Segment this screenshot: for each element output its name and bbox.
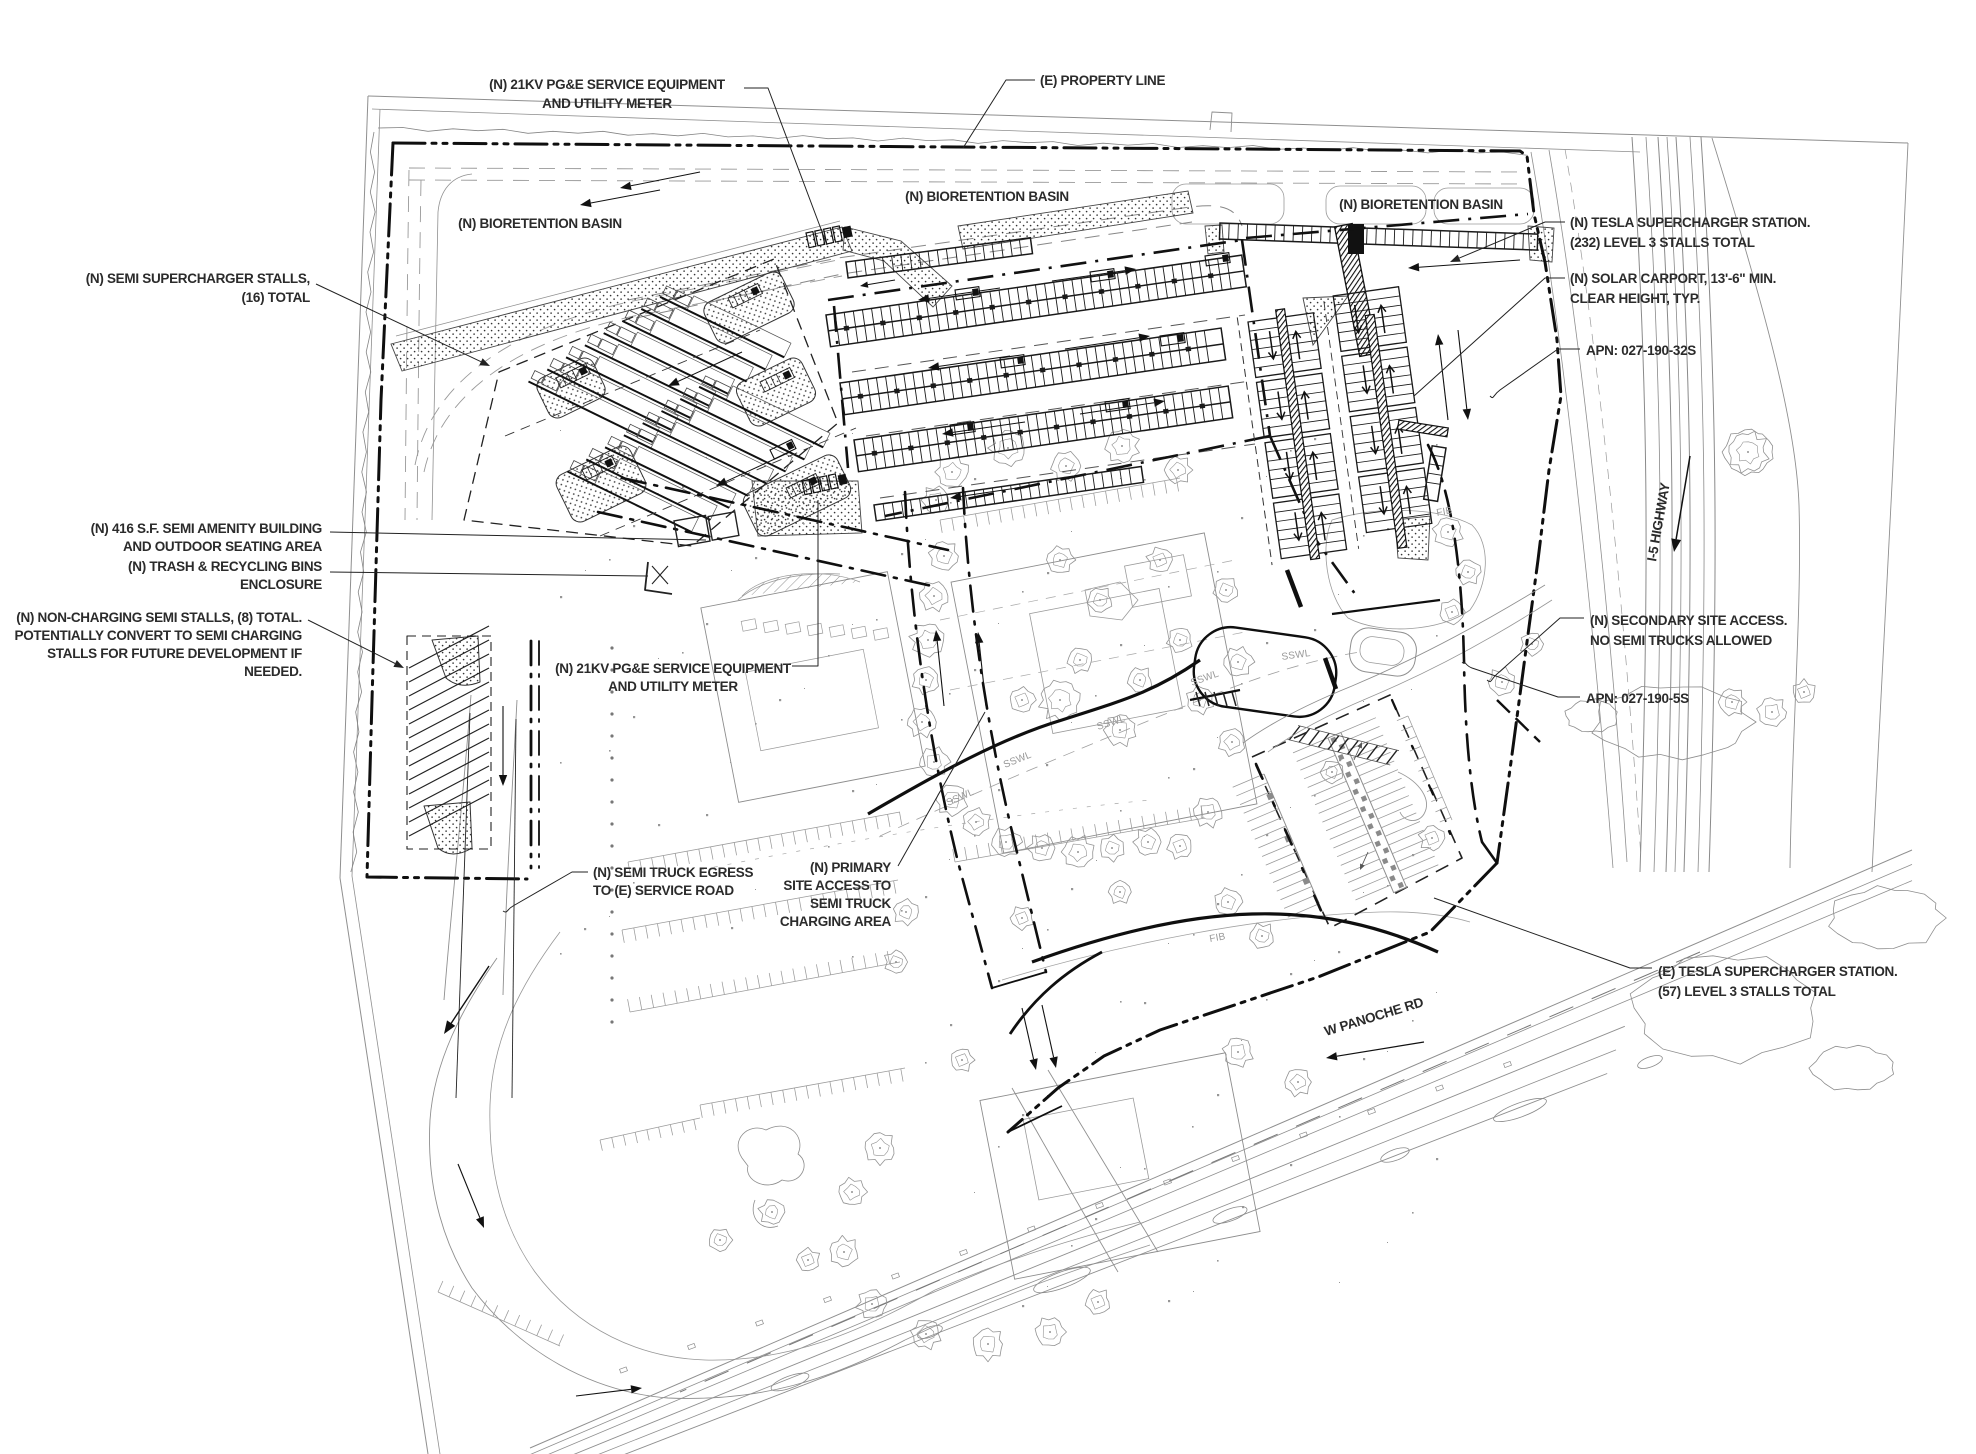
- svg-text:(N) SECONDARY SITE ACCESS.: (N) SECONDARY SITE ACCESS.: [1590, 613, 1787, 628]
- svg-text:AND UTILITY METER: AND UTILITY METER: [608, 679, 738, 694]
- svg-text:(N) NON-CHARGING SEMI STALLS,: (N) NON-CHARGING SEMI STALLS, (8) TOTAL.: [16, 610, 302, 625]
- svg-text:STALLS FOR FUTURE DEVELOPMENT: STALLS FOR FUTURE DEVELOPMENT IF: [47, 646, 302, 661]
- svg-text:(N) TESLA SUPERCHARGER STATION: (N) TESLA SUPERCHARGER STATION.: [1570, 215, 1810, 230]
- svg-text:(E) PROPERTY LINE: (E) PROPERTY LINE: [1040, 73, 1165, 88]
- svg-text:(N) 21KV PG&E SERVICE EQUIPMEN: (N) 21KV PG&E SERVICE EQUIPMENT: [555, 661, 792, 676]
- svg-text:POTENTIALLY CONVERT TO SEMI CH: POTENTIALLY CONVERT TO SEMI CHARGING: [15, 628, 302, 643]
- svg-text:CLEAR HEIGHT, TYP.: CLEAR HEIGHT, TYP.: [1570, 291, 1700, 306]
- svg-text:(N) 416 S.F. SEMI AMENITY BUIL: (N) 416 S.F. SEMI AMENITY BUILDING: [91, 521, 322, 536]
- svg-text:(N) TRASH & RECYCLING BINS: (N) TRASH & RECYCLING BINS: [128, 559, 322, 574]
- svg-text:(N) BIORETENTION BASIN: (N) BIORETENTION BASIN: [458, 216, 622, 231]
- svg-text:(57) LEVEL 3 STALLS TOTAL: (57) LEVEL 3 STALLS TOTAL: [1658, 984, 1836, 999]
- svg-text:(16) TOTAL: (16) TOTAL: [241, 290, 310, 305]
- svg-text:SEMI TRUCK: SEMI TRUCK: [810, 896, 892, 911]
- svg-text:(N) PRIMARY: (N) PRIMARY: [810, 860, 891, 875]
- svg-text:(N) SOLAR CARPORT, 13'-6" MIN.: (N) SOLAR CARPORT, 13'-6" MIN.: [1570, 271, 1776, 286]
- svg-text:SITE ACCESS TO: SITE ACCESS TO: [783, 878, 891, 893]
- svg-text:AND UTILITY METER: AND UTILITY METER: [542, 96, 672, 111]
- svg-text:TO (E) SERVICE ROAD: TO (E) SERVICE ROAD: [593, 883, 734, 898]
- svg-text:APN: 027-190-5S: APN: 027-190-5S: [1586, 691, 1689, 706]
- svg-text:NEEDED.: NEEDED.: [244, 664, 302, 679]
- svg-text:(E) TESLA SUPERCHARGER STATION: (E) TESLA SUPERCHARGER STATION.: [1658, 964, 1897, 979]
- svg-text:ENCLOSURE: ENCLOSURE: [240, 577, 322, 592]
- svg-text:NO SEMI TRUCKS ALLOWED: NO SEMI TRUCKS ALLOWED: [1590, 633, 1772, 648]
- svg-text:(N) 21KV PG&E SERVICE EQUIPMEN: (N) 21KV PG&E SERVICE EQUIPMENT: [489, 77, 726, 92]
- svg-text:(N) BIORETENTION BASIN: (N) BIORETENTION BASIN: [905, 189, 1069, 204]
- svg-text:AND OUTDOOR SEATING AREA: AND OUTDOOR SEATING AREA: [123, 539, 323, 554]
- svg-text:(N) BIORETENTION BASIN: (N) BIORETENTION BASIN: [1339, 197, 1503, 212]
- svg-text:APN: 027-190-32S: APN: 027-190-32S: [1586, 343, 1696, 358]
- svg-text:CHARGING AREA: CHARGING AREA: [780, 914, 892, 929]
- svg-text:(N) SEMI SUPERCHARGER STALLS,: (N) SEMI SUPERCHARGER STALLS,: [86, 271, 310, 286]
- svg-text:(N) SEMI TRUCK EGRESS: (N) SEMI TRUCK EGRESS: [593, 865, 754, 880]
- svg-text:(232) LEVEL 3 STALLS TOTAL: (232) LEVEL 3 STALLS TOTAL: [1570, 235, 1755, 250]
